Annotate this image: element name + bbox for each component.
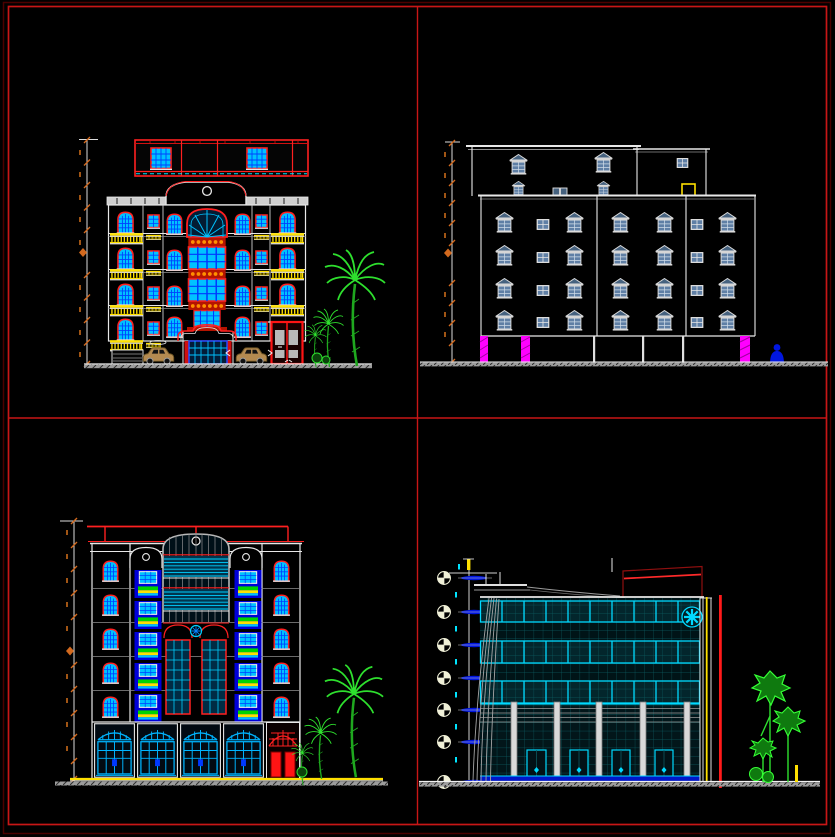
storefront-bay <box>181 724 221 777</box>
level-datum-symbol <box>437 571 451 585</box>
ground-line-modern <box>419 782 820 787</box>
rear-elevation-drawing: Rear elevation - five floor facade with … <box>55 518 388 786</box>
window-band <box>481 601 700 622</box>
person-figure <box>770 344 784 364</box>
storefront-bay <box>95 724 135 777</box>
level-datum-symbol <box>437 703 451 717</box>
bush <box>322 356 330 364</box>
level-datum-symbol <box>437 605 451 619</box>
left-garage-opening <box>112 350 143 364</box>
red-door-bay <box>267 723 300 779</box>
turret-circle-ornament <box>143 554 150 561</box>
building-side <box>466 146 756 363</box>
tree-canopy <box>773 707 805 736</box>
building-modern <box>473 558 722 788</box>
top-level-tick <box>467 559 470 570</box>
level-datum-symbol <box>437 638 451 652</box>
window-band <box>481 681 700 703</box>
red-garage-door <box>268 322 306 364</box>
level-text-marks <box>455 564 460 763</box>
front-elevation-drawing: Front elevation - classical apartment bu… <box>79 137 385 368</box>
palm-tree <box>325 665 383 777</box>
storefront-bays <box>92 722 300 779</box>
side-elevation-drawing: Side elevation - masonry block with pedi… <box>420 140 828 366</box>
dimension-line <box>444 140 460 365</box>
yellow-tree-trunk <box>795 765 798 782</box>
bush <box>312 353 322 363</box>
tree-canopy <box>752 671 790 705</box>
penthouse-window <box>246 148 268 170</box>
glass-facade-elevation-drawing: Modern elevation - teal curtain wall gri… <box>419 558 820 789</box>
cad-sheet: Front elevation - classical apartment bu… <box>0 0 835 837</box>
tree-canopy <box>750 738 776 759</box>
window-band <box>481 641 700 663</box>
palm-trees-front <box>304 250 385 367</box>
dimension-diamond <box>66 647 74 656</box>
glazed-tower <box>163 534 229 623</box>
parapet-circle-ornament <box>203 187 212 196</box>
turret-circle-ornament <box>243 554 250 561</box>
dimension-line <box>79 137 98 367</box>
penthouse-level <box>466 146 710 196</box>
car <box>236 348 266 364</box>
red-edge-column <box>719 595 722 788</box>
ground-line-side <box>420 362 828 366</box>
storefront-bay <box>138 724 178 777</box>
red-roof-feature <box>623 567 702 598</box>
dimension-diamond <box>444 249 452 258</box>
level-datum-symbol <box>437 735 451 749</box>
penthouse-window <box>150 148 172 170</box>
car <box>143 348 173 364</box>
building-front <box>107 140 308 364</box>
side-windows <box>496 212 736 330</box>
bush <box>750 768 763 781</box>
palm-trees-rear <box>291 665 383 785</box>
level-datum-symbol <box>437 671 451 685</box>
dimension-line <box>60 518 83 782</box>
pilotis-columns <box>480 336 750 363</box>
sunburst-arch-window <box>187 209 227 237</box>
storefront-bay <box>224 724 264 777</box>
trees-modern <box>750 671 806 783</box>
rosette-ornament <box>682 607 702 627</box>
yellow-opening-outline <box>682 184 695 196</box>
red-roof-line <box>624 575 701 579</box>
center-tall-windows <box>164 625 228 714</box>
penthouse <box>135 140 308 176</box>
cornice-parapet <box>107 182 308 206</box>
right-service-core <box>700 595 722 788</box>
yellow-edge-line <box>706 597 708 781</box>
bush <box>297 767 307 777</box>
elevations-canvas: Front elevation - classical apartment bu… <box>0 0 835 837</box>
dimension-diamond <box>79 248 87 257</box>
ground-storefront <box>480 702 700 782</box>
building-rear <box>88 534 304 779</box>
ground-line-rear <box>55 779 388 786</box>
palm-tree <box>325 250 385 366</box>
bush <box>763 772 774 783</box>
